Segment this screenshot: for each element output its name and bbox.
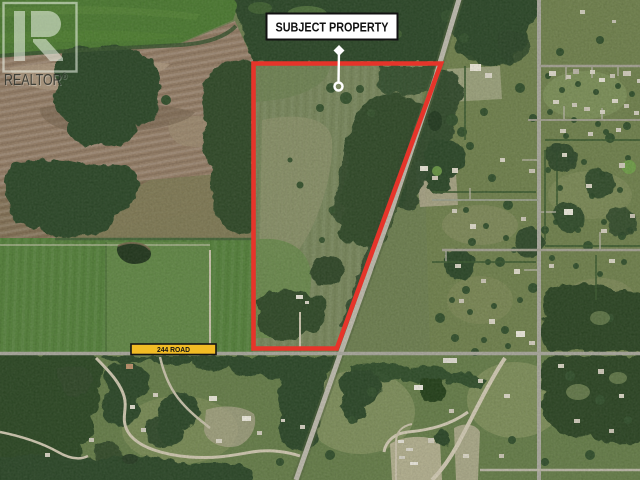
svg-text:SUBJECT PROPERTY: SUBJECT PROPERTY [276, 21, 390, 35]
svg-text:244 ROAD: 244 ROAD [157, 347, 190, 354]
svg-text:REALTOR®: REALTOR® [4, 71, 67, 89]
